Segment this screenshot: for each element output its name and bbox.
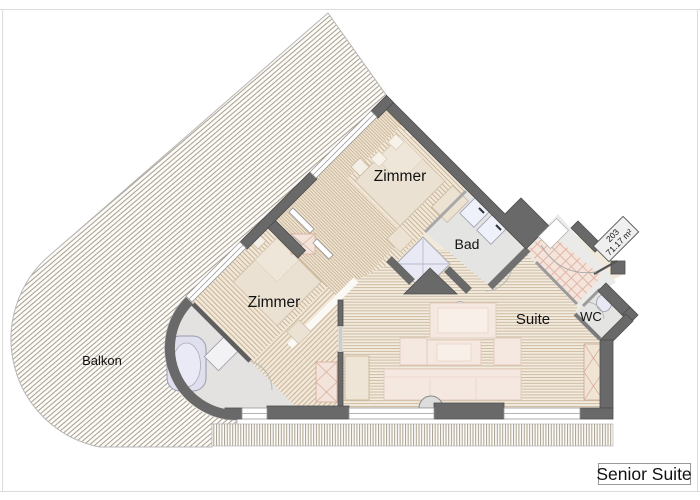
svg-text:Balkon: Balkon	[82, 353, 122, 368]
svg-text:Bad: Bad	[455, 236, 480, 252]
svg-text:Zimmer: Zimmer	[248, 294, 301, 311]
svg-text:Zimmer: Zimmer	[374, 168, 427, 185]
svg-text:WC: WC	[580, 309, 602, 324]
svg-text:Suite: Suite	[516, 311, 550, 328]
svg-text:Senior Suite: Senior Suite	[596, 464, 691, 484]
